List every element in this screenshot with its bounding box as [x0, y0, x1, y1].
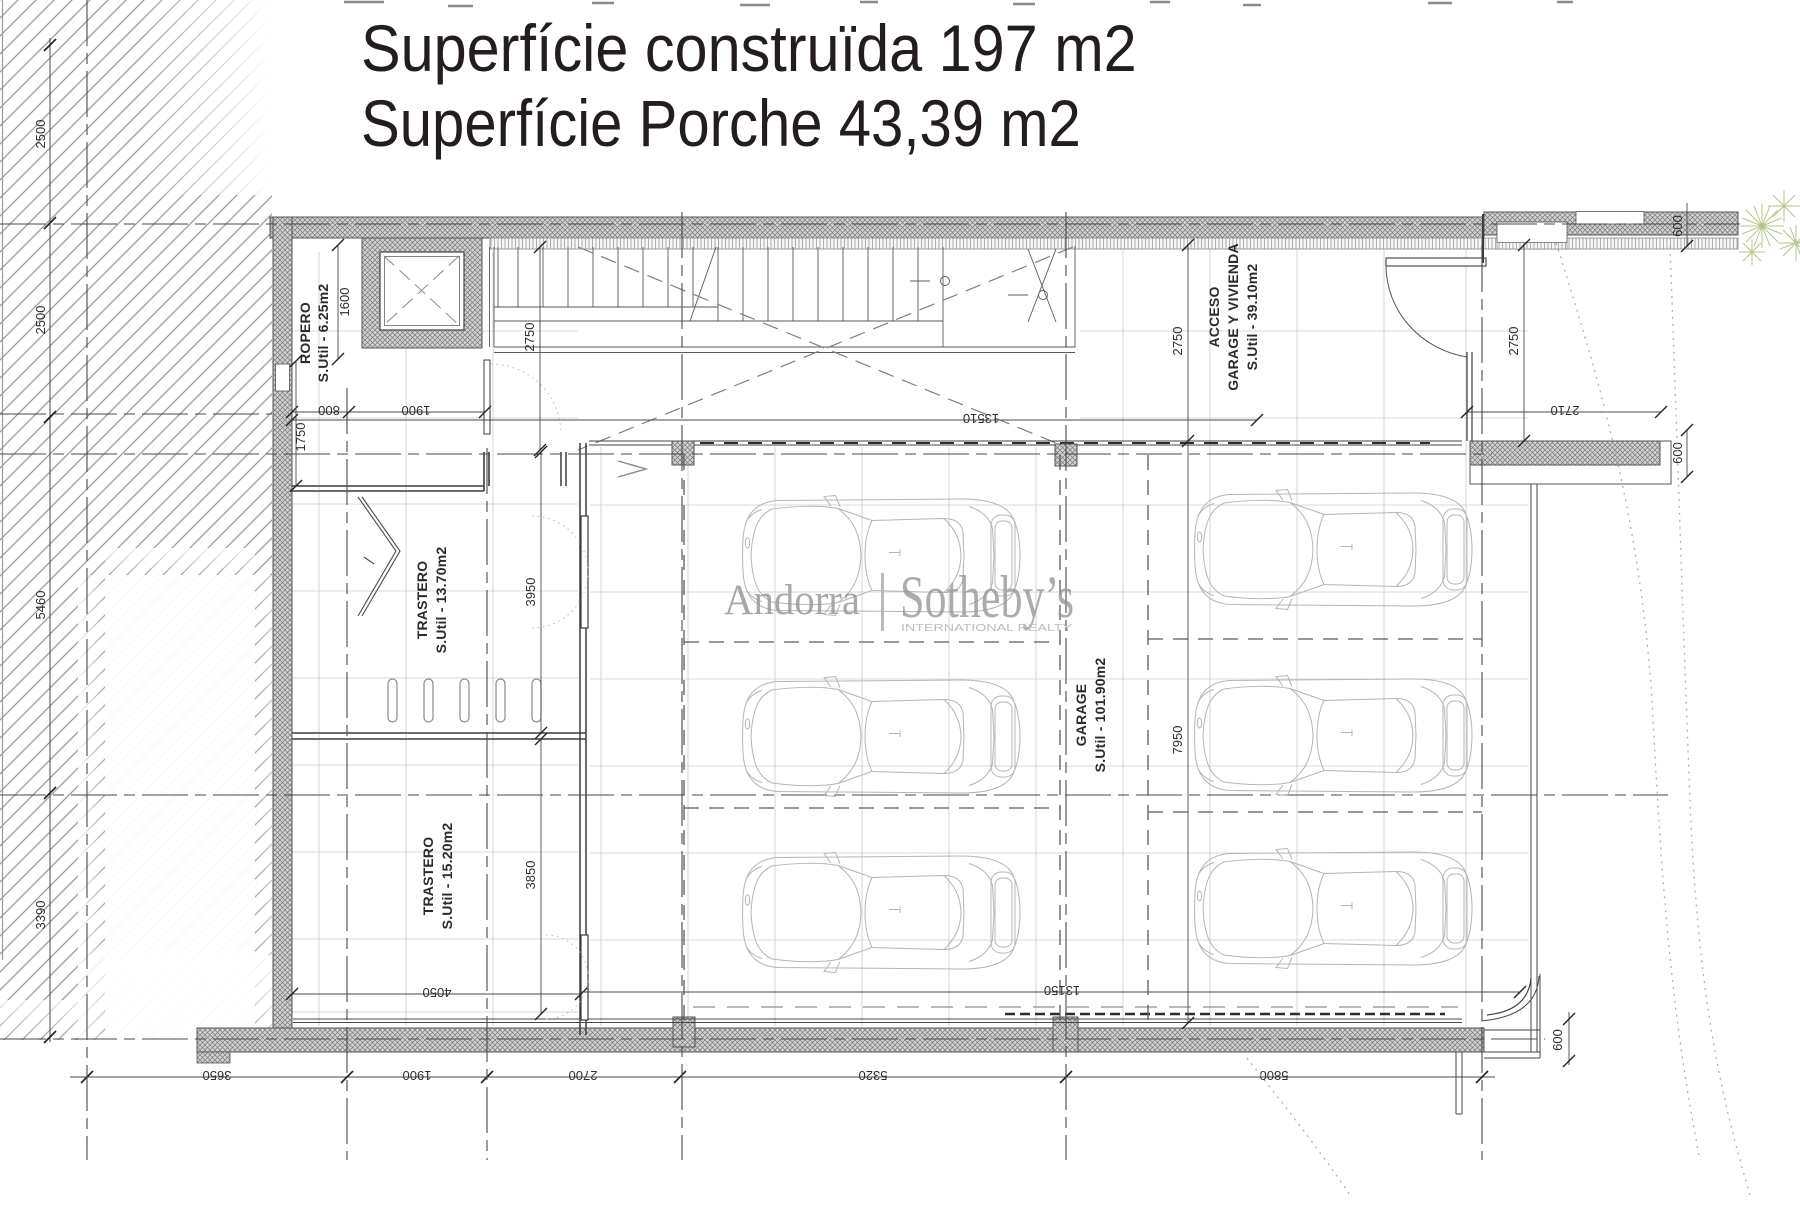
svg-text:5800: 5800: [1260, 1068, 1289, 1083]
svg-text:2700: 2700: [569, 1068, 598, 1083]
svg-text:5460: 5460: [33, 591, 48, 620]
svg-text:7950: 7950: [1170, 726, 1185, 755]
svg-text:TRASTERO: TRASTERO: [420, 837, 436, 916]
svg-text:S.Util - 15.20m2: S.Util - 15.20m2: [439, 823, 455, 930]
svg-text:800: 800: [318, 403, 340, 418]
svg-text:S.Util - 13.70m2: S.Util - 13.70m2: [433, 547, 449, 654]
svg-text:Superfície Porche 43,39 m2: Superfície Porche 43,39 m2: [361, 88, 1081, 161]
svg-text:S.Util - 101.90m2: S.Util - 101.90m2: [1092, 658, 1108, 773]
svg-text:2500: 2500: [33, 306, 48, 335]
svg-text:2500: 2500: [33, 120, 48, 149]
svg-text:3950: 3950: [523, 578, 538, 607]
svg-text:2710: 2710: [1551, 403, 1580, 418]
svg-text:2750: 2750: [1170, 327, 1185, 356]
svg-text:Superfície construïda 197 m2: Superfície construïda 197 m2: [361, 12, 1137, 86]
svg-text:ROPERO: ROPERO: [297, 302, 313, 364]
svg-text:GARAGE: GARAGE: [1073, 684, 1089, 747]
svg-text:Sotheby’s: Sotheby’s: [900, 564, 1074, 630]
svg-text:600: 600: [1670, 215, 1685, 237]
svg-text:1600: 1600: [337, 288, 352, 317]
svg-text:5320: 5320: [859, 1068, 888, 1083]
svg-text:13150: 13150: [1044, 983, 1080, 998]
svg-text:INTERNATIONAL REALTY: INTERNATIONAL REALTY: [901, 623, 1072, 634]
svg-text:3650: 3650: [203, 1068, 232, 1083]
svg-text:2750: 2750: [1506, 327, 1521, 356]
svg-text:S.Util - 39.10m2: S.Util - 39.10m2: [1244, 264, 1260, 371]
svg-text:600: 600: [1550, 1029, 1565, 1051]
svg-text:1900: 1900: [403, 1068, 432, 1083]
svg-text:4050: 4050: [423, 985, 452, 1000]
svg-text:GARAGE Y VIVIENDA: GARAGE Y VIVIENDA: [1225, 243, 1241, 391]
svg-text:1900: 1900: [402, 403, 431, 418]
svg-text:600: 600: [1670, 442, 1685, 464]
svg-text:2750: 2750: [522, 323, 537, 352]
svg-text:TRASTERO: TRASTERO: [414, 561, 430, 640]
svg-text:S.Util - 6.25m2: S.Util - 6.25m2: [315, 284, 331, 383]
svg-text:1750: 1750: [293, 423, 308, 452]
svg-text:ACCESO: ACCESO: [1206, 286, 1222, 347]
svg-text:3850: 3850: [523, 861, 538, 890]
svg-text:Andorra: Andorra: [724, 577, 860, 624]
svg-text:3390: 3390: [33, 901, 48, 930]
svg-text:13510: 13510: [963, 411, 999, 426]
